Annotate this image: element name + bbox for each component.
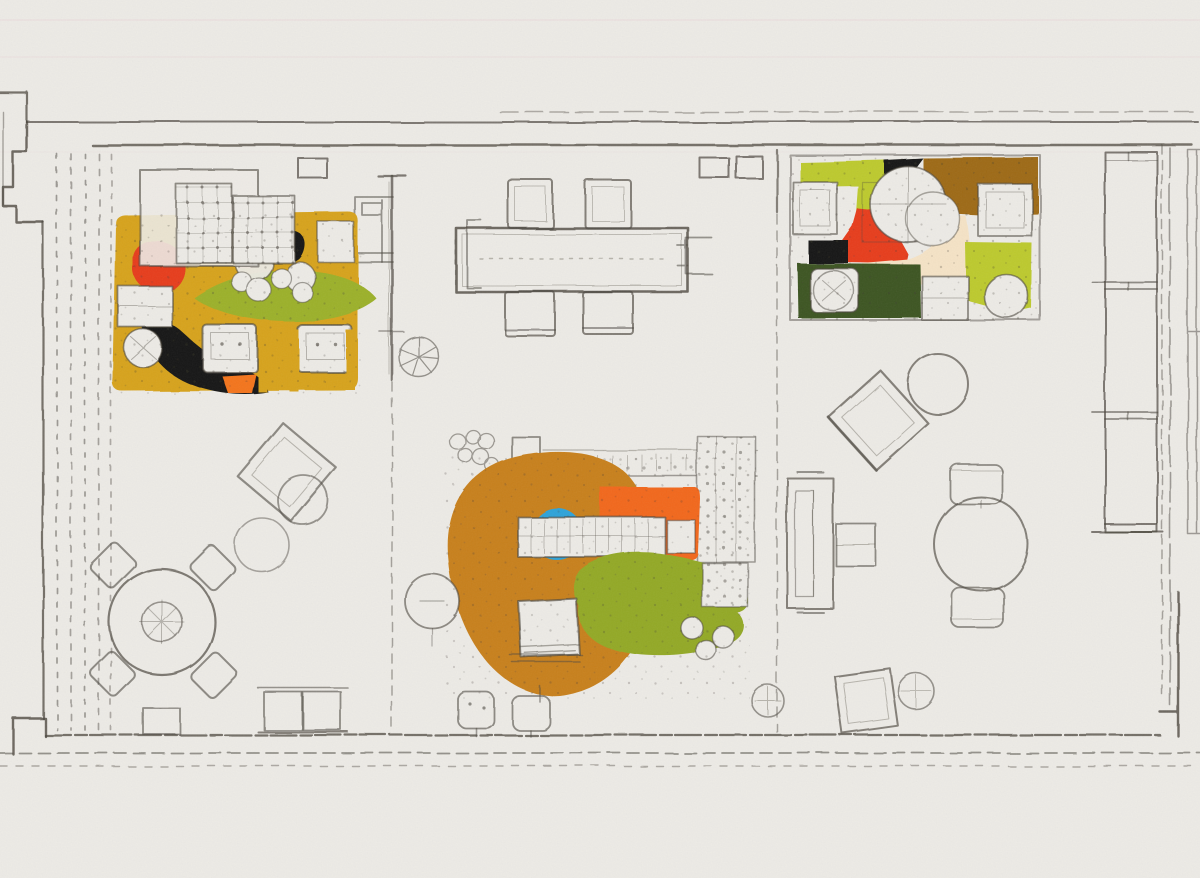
- floorplan-scan: Hand-drawn interior floor plan sketch wi…: [0, 0, 1200, 878]
- paper-grain-overlay: [0, 0, 1200, 878]
- floorplan-drawing: Hand-drawn interior floor plan sketch wi…: [0, 0, 1200, 878]
